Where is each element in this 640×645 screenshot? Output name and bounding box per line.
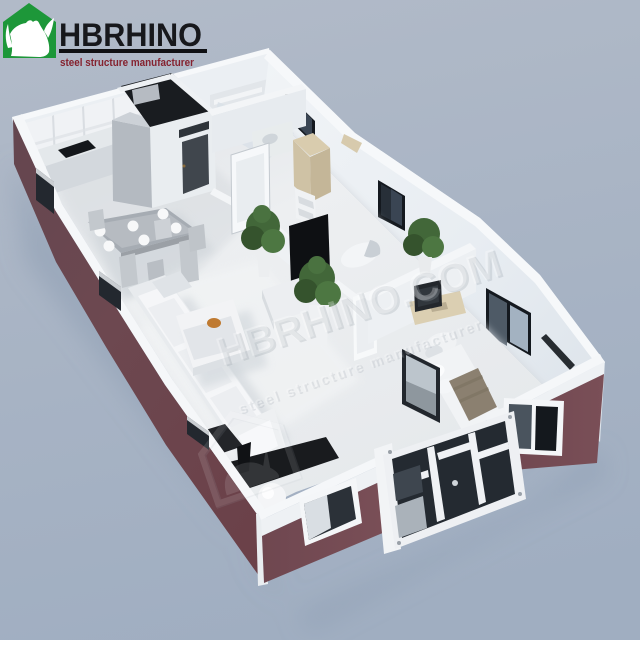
svg-text:steel structure manufacturer: steel structure manufacturer — [60, 57, 195, 69]
svg-text:HBRHINO: HBRHINO — [59, 17, 202, 53]
